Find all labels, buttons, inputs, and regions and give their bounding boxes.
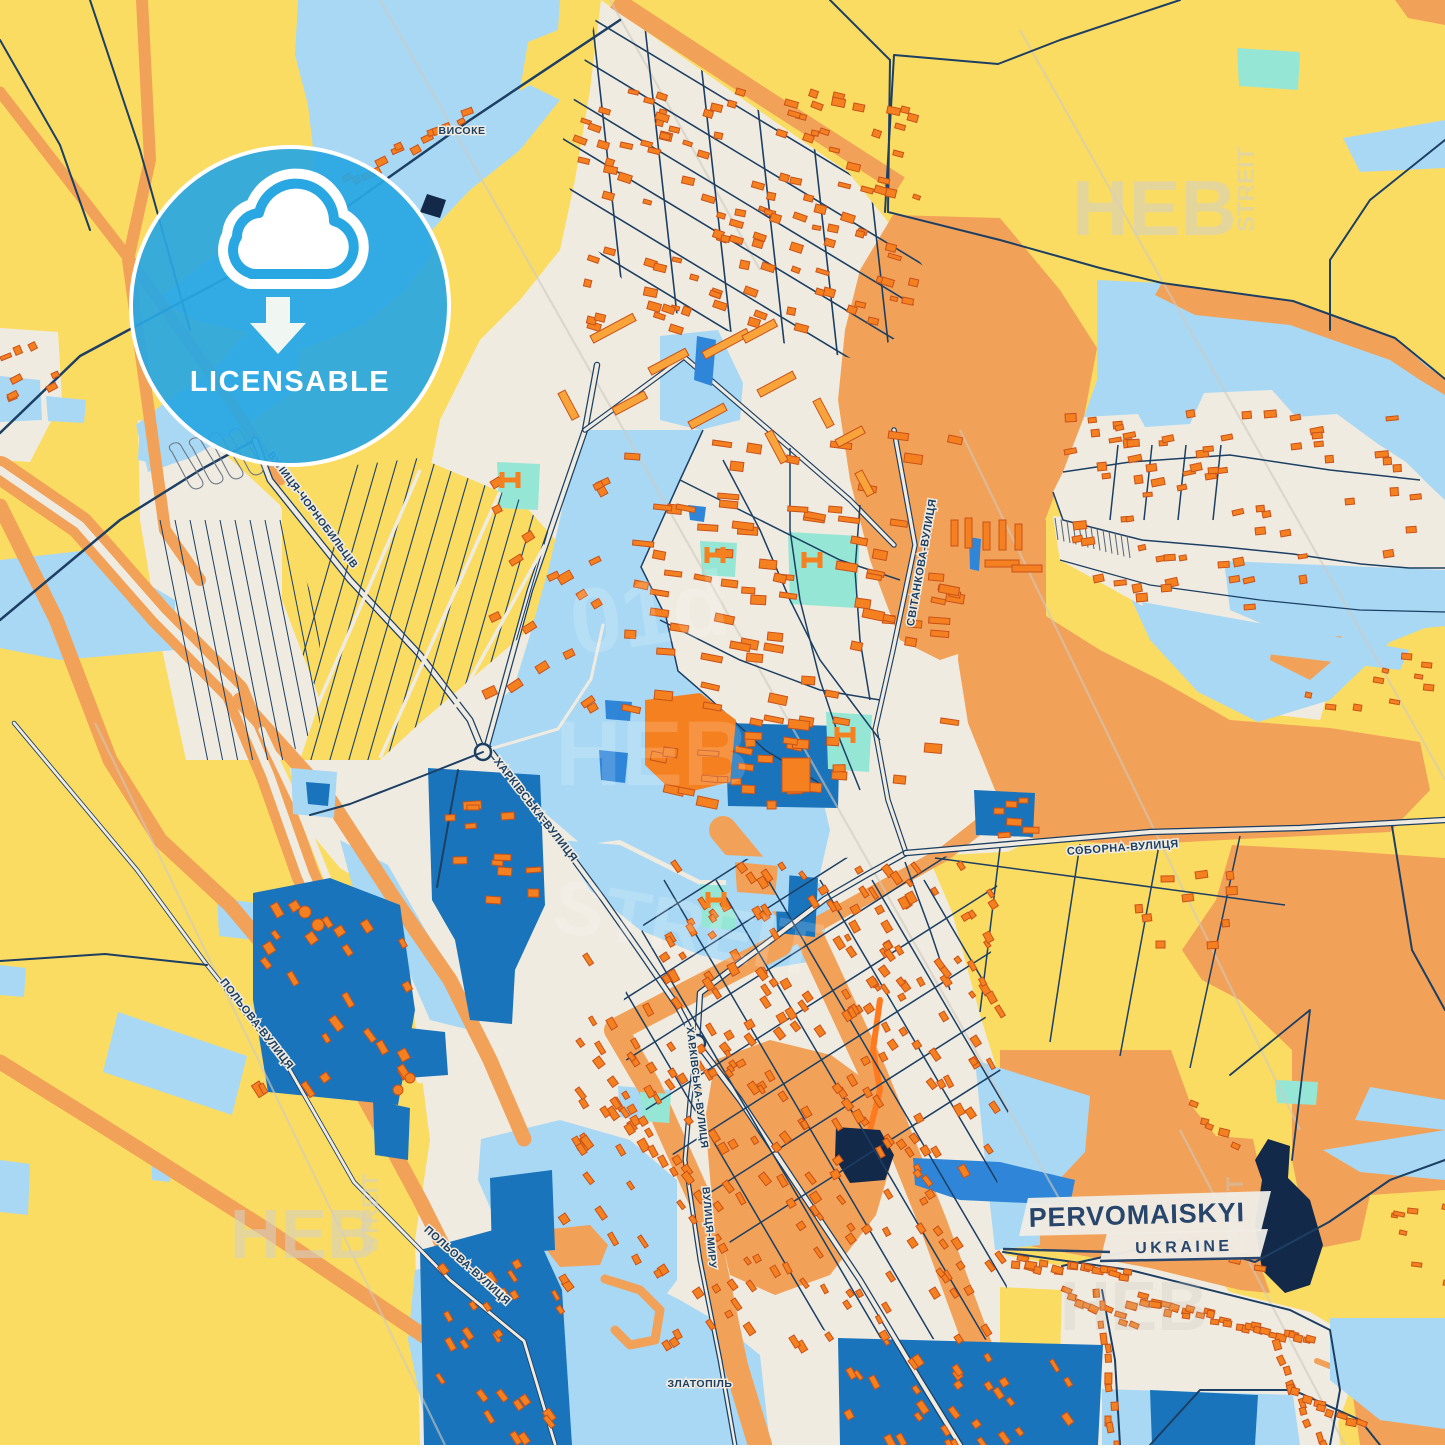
svg-text:STREIT: STREIT [358,1173,383,1252]
svg-text:ЗЛАТОПІЛЬ: ЗЛАТОПІЛЬ [668,1378,733,1390]
svg-text:HEB: HEB [1072,164,1237,252]
svg-text:01d: 01d [564,552,735,675]
svg-text:ВИСОКЕ: ВИСОКЕ [438,125,485,137]
svg-text:HEB: HEB [230,1195,378,1273]
svg-text:HEB: HEB [555,703,749,805]
svg-text:UKRAINE: UKRAINE [1135,1238,1233,1258]
svg-text:STREIT: STREIT [1233,146,1260,232]
svg-text:PERVOMAISKYI: PERVOMAISKYI [1028,1197,1245,1233]
svg-text:LICENSABLE: LICENSABLE [190,366,390,398]
svg-text:HEB: HEB [1060,1267,1208,1345]
